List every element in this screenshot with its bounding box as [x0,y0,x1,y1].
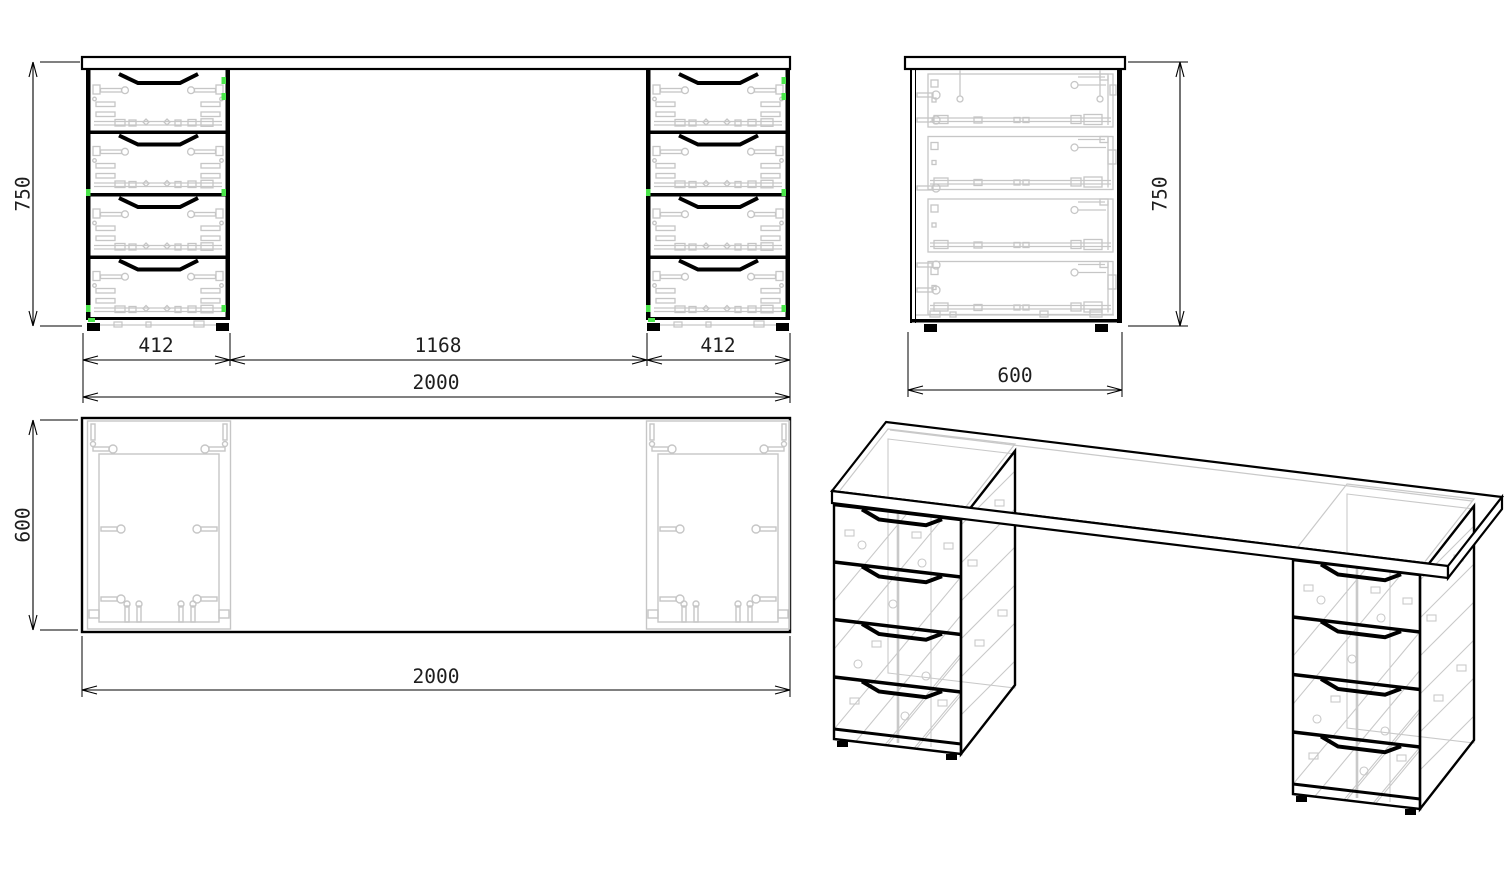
side-dimensions: 750 600 [908,62,1188,397]
technical-drawing-canvas: 412 1168 412 2000 750 [0,0,1510,872]
pedestal-left-front [86,69,230,331]
dim-front-pedestal-left: 412 [138,334,173,357]
dim-side-depth: 600 [997,364,1032,387]
desktop-front [82,57,790,69]
side-carcass [911,69,1122,332]
technical-drawing-page: 412 1168 412 2000 750 [0,0,1510,872]
isometric-view [760,370,1510,872]
foot [924,324,937,332]
dim-side-height: 750 [1149,176,1172,211]
desktop-side [905,57,1125,69]
dim-top-depth: 600 [12,507,35,542]
front-view: 412 1168 412 2000 750 [12,57,791,403]
dim-front-pedestal-right: 412 [700,334,735,357]
dim-front-total-width: 2000 [413,371,460,394]
pedestal-right-front [646,69,790,331]
foot [1095,324,1108,332]
front-dimensions: 412 1168 412 2000 750 [12,62,791,403]
top-view: 600 2000 [12,418,791,697]
side-hardware-icons [916,70,1116,317]
dim-front-center-span: 1168 [415,334,462,357]
dim-front-height: 750 [12,176,35,211]
side-view: 750 600 [905,57,1188,397]
dim-top-width: 2000 [413,665,460,688]
